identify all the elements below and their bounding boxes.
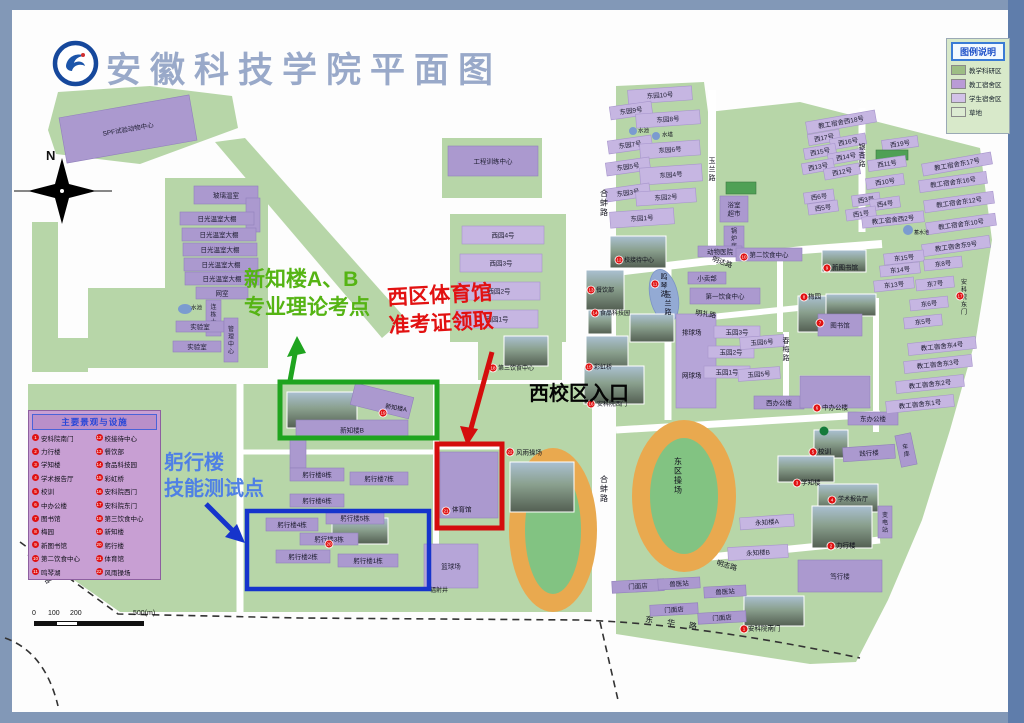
map-label: 网球场 xyxy=(682,371,702,380)
facility-label: 第三饮食中心 xyxy=(105,513,144,523)
annotation-skill-test: 躬行楼 技能测试点 xyxy=(164,450,264,503)
facility-number: 16 xyxy=(96,488,103,495)
green-poi-dot xyxy=(820,427,829,436)
facility-label: 彩虹桥 xyxy=(105,473,125,483)
facility-label: 体育馆 xyxy=(105,553,125,563)
map-label: 梅园 xyxy=(808,292,821,301)
map-label: 中办公楼 xyxy=(822,403,849,412)
building-label: 玉园3号 xyxy=(725,328,749,336)
legend-item: 教工宿舍区 xyxy=(951,79,1005,89)
facility-label: 食品科技园 xyxy=(105,459,138,469)
facility-item: 3学知楼 xyxy=(31,458,95,471)
facility-label: 安科院东门 xyxy=(105,500,138,510)
facility-item: 4学术报告厅 xyxy=(31,471,95,484)
map-label: 新图书馆 xyxy=(832,263,859,272)
facility-item: 17安科院东门 xyxy=(95,498,159,511)
building: 玉园5号 xyxy=(738,367,781,382)
poi-marker-number: 21 xyxy=(443,509,449,514)
legend-swatch xyxy=(951,65,966,75)
map-label: 风雨操场 xyxy=(516,448,543,457)
facility-label: 中办公楼 xyxy=(41,500,67,510)
facility-number: 13 xyxy=(96,448,103,455)
poi-marker: 12 xyxy=(615,256,623,264)
map-label: 银杏路 xyxy=(859,142,866,168)
facility-number: 3 xyxy=(32,461,39,468)
building: 日光温室大棚 xyxy=(183,243,257,256)
map-label: 水池 xyxy=(191,304,203,312)
building: 日光温室大棚 xyxy=(182,228,256,241)
annotation-admit-card: 西区体育馆 准考证领取 xyxy=(387,279,495,340)
building-label: 躬行楼5栋 xyxy=(340,513,370,522)
poi-marker: 9 xyxy=(823,264,831,272)
poi-marker-number: 13 xyxy=(588,288,594,293)
scale-segment xyxy=(56,621,78,626)
building: 西园3号 xyxy=(460,254,542,272)
annotation-exam-theory-line1: 新知楼A、B xyxy=(244,266,370,294)
photo-thumbnail xyxy=(826,294,876,316)
poi-marker: 17 xyxy=(956,292,964,300)
building-label: 篮球场 xyxy=(441,561,461,570)
building-label: 小卖部 xyxy=(697,273,717,282)
map-label: 体育馆 xyxy=(452,505,472,514)
poi-marker: 10 xyxy=(740,253,748,261)
building-label: 浴室 xyxy=(728,200,742,209)
facility-number: 4 xyxy=(32,474,39,481)
building-label: 日光温室大棚 xyxy=(203,274,243,283)
map-label: 玉兰路 xyxy=(709,157,716,182)
poi-marker-number: 10 xyxy=(741,255,747,260)
legend-item: 学生宿舍区 xyxy=(951,93,1005,103)
map-label: 合蚌路 xyxy=(600,474,608,503)
map-label: 水塔 xyxy=(662,131,674,139)
building-label: 玉园2号 xyxy=(719,348,743,356)
photo-thumbnail xyxy=(744,596,804,626)
annotation-skill-test-line1: 躬行楼 xyxy=(164,450,264,476)
legend-item-label: 草地 xyxy=(969,107,982,117)
poi-marker: 13 xyxy=(587,286,595,294)
building xyxy=(726,182,756,194)
building xyxy=(800,376,870,408)
map-label: 餐饮部 xyxy=(596,286,614,294)
map-label: 安科院南门 xyxy=(748,624,781,633)
building-label: 图书馆 xyxy=(830,320,850,329)
map-label: 排球场 xyxy=(682,328,702,337)
facility-number: 21 xyxy=(96,555,103,562)
page-title: 安徽科技学院平面图 xyxy=(106,42,502,93)
green-arrow-head xyxy=(287,336,306,357)
building-label: 超市 xyxy=(728,209,742,218)
building: 工程训练中心 xyxy=(448,146,538,176)
building-label: 玉园1号 xyxy=(715,368,739,376)
poi-marker: 1 xyxy=(740,625,748,633)
scale-label-500: 500(m) xyxy=(133,610,155,617)
building-label: 实验室 xyxy=(190,322,210,331)
photo-thumbnail xyxy=(510,462,574,512)
map-label: 辐射井 xyxy=(430,586,448,594)
poi-marker: 8 xyxy=(800,293,808,301)
legend-swatch xyxy=(951,93,966,103)
poi-marker: 15 xyxy=(585,363,593,371)
building-label: 玻璃温室 xyxy=(213,190,240,199)
facility-item: 9新图书馆 xyxy=(31,538,95,551)
building: 躬行楼7栋 xyxy=(350,472,408,485)
building-label: 西园3号 xyxy=(489,259,513,267)
poi-marker-number: 15 xyxy=(586,365,592,370)
scale-segment xyxy=(78,621,144,626)
scale-bar: 0 100 200 500(m) xyxy=(30,610,180,634)
poi-marker-number: 17 xyxy=(957,294,963,299)
facility-label: 图书馆 xyxy=(41,513,61,523)
building: 网室 xyxy=(196,287,248,299)
facility-number: 18 xyxy=(96,515,103,522)
annotation-admit-card-line2: 准考证领取 xyxy=(388,307,494,340)
building: 实验室 xyxy=(176,321,224,332)
building-label: 西办公楼 xyxy=(766,398,793,407)
building: 东办公楼 xyxy=(848,412,898,425)
building: 玉园3号 xyxy=(714,326,760,338)
facility-label: 餐饮部 xyxy=(105,446,125,456)
facility-item: 11鸣琴湖 xyxy=(31,565,95,578)
poi-marker: 4 xyxy=(828,496,836,504)
facility-item: 2力行楼 xyxy=(31,444,95,457)
facility-item: 1安科院南门 xyxy=(31,431,95,444)
facility-label: 躬行楼 xyxy=(105,540,125,550)
poi-marker: 11 xyxy=(651,280,659,288)
compass-rose: N xyxy=(14,148,112,224)
annotation-skill-test-line2: 技能测试点 xyxy=(164,476,264,502)
building: 躬行楼5栋 xyxy=(326,512,384,524)
poi-marker: 3 xyxy=(793,479,801,487)
building: 躬行楼2栋 xyxy=(276,550,330,563)
poi-marker: 21 xyxy=(442,507,450,515)
poi-marker-number: 11 xyxy=(653,282,658,287)
building-label: 西园4号 xyxy=(491,231,515,239)
facility-label: 鸣琴湖 xyxy=(41,567,61,577)
legend-item: 草地 xyxy=(951,107,1005,117)
map-label: 食品科技园 xyxy=(600,309,630,317)
building-label: 玉园6号 xyxy=(750,338,774,348)
poi-marker-number: 19 xyxy=(380,411,386,416)
building-label: 日光温室大棚 xyxy=(198,214,238,223)
poi-marker: 6 xyxy=(813,404,821,412)
facility-item: 14食品科技园 xyxy=(95,458,159,471)
building-label: 新知楼B xyxy=(340,425,364,434)
map-label: 合蚌路 xyxy=(600,188,608,217)
legend-item: 教学科研区 xyxy=(951,65,1005,75)
building-label: 躬行楼4栋 xyxy=(277,520,307,529)
building: 西园4号 xyxy=(462,226,544,244)
building-label: 躬行楼7栋 xyxy=(364,474,394,483)
building-label: 玉园5号 xyxy=(747,370,771,380)
facility-number: 11 xyxy=(32,568,39,575)
facility-number: 6 xyxy=(32,501,39,508)
poi-marker: 19 xyxy=(379,409,387,417)
facilities-legend-title: 主要景观与设施 xyxy=(32,414,157,430)
facilities-legend: 主要景观与设施 1安科院南门2力行楼3学知楼4学术报告厅5校训6中办公楼7图书馆… xyxy=(28,410,161,580)
map-label: 校训 xyxy=(818,447,831,456)
facility-number: 5 xyxy=(32,488,39,495)
facility-label: 校接待中心 xyxy=(105,433,138,443)
poi-marker-number: 18 xyxy=(490,366,496,371)
map-label: 第三饮食中心 xyxy=(498,364,534,372)
building: 图书馆 xyxy=(818,314,862,336)
building-label: 网室 xyxy=(216,288,230,297)
facility-number: 15 xyxy=(96,474,103,481)
facility-label: 学术报告厅 xyxy=(41,473,74,483)
facility-item: 5校训 xyxy=(31,485,95,498)
legend-item-label: 教学科研区 xyxy=(969,65,1002,75)
map-label: 蓄水池 xyxy=(914,229,929,236)
scale-label-100: 100 xyxy=(48,610,60,617)
facility-label: 力行楼 xyxy=(41,446,61,456)
poi-marker-number: 22 xyxy=(507,450,513,455)
facility-item: 8梅园 xyxy=(31,525,95,538)
map-label: 变电站 xyxy=(882,511,888,534)
facility-label: 新知楼 xyxy=(105,526,125,536)
facility-item: 18第三饮食中心 xyxy=(95,511,159,524)
building: 西办公楼 xyxy=(754,396,804,409)
building: 实验室 xyxy=(173,341,221,352)
facility-number: 1 xyxy=(32,434,39,441)
annotation-west-entrance: 西校区入口 xyxy=(529,381,629,407)
legend-title: 图例说明 xyxy=(951,42,1005,61)
facility-item: 22风雨操场 xyxy=(95,565,159,578)
building: 躬行楼6栋 xyxy=(290,494,344,507)
map-label: 学知楼 xyxy=(801,478,821,487)
photo-thumbnail xyxy=(778,456,834,482)
facility-number: 9 xyxy=(32,541,39,548)
building: 躬行楼1栋 xyxy=(338,554,398,567)
building: 管理中心 xyxy=(224,318,238,362)
building-label: 日光温室大棚 xyxy=(201,245,241,254)
building: 门面店 xyxy=(612,579,665,594)
building: 动物医院 xyxy=(698,246,742,257)
scale-label-0: 0 xyxy=(32,610,36,617)
map-label: 鸣琴湖 xyxy=(661,272,668,298)
building-label: 躬行楼1栋 xyxy=(353,556,383,565)
scale-label-200: 200 xyxy=(70,610,82,617)
facility-number: 10 xyxy=(32,555,39,562)
facility-item: 7图书馆 xyxy=(31,511,95,524)
building xyxy=(676,314,716,408)
building-label: 日光温室大棚 xyxy=(202,260,242,269)
building xyxy=(290,438,306,468)
poi-marker-number: 20 xyxy=(326,542,332,547)
legend-item-label: 教工宿舍区 xyxy=(969,79,1002,89)
building: 躬行楼8栋 xyxy=(290,468,344,481)
photo-thumbnail xyxy=(630,314,674,342)
facility-item: 15彩虹桥 xyxy=(95,471,159,484)
building-label: 躬行楼2栋 xyxy=(288,552,318,561)
poi-marker: 22 xyxy=(506,448,514,456)
poi-marker: 5 xyxy=(809,448,817,456)
poi-marker: 14 xyxy=(591,309,599,317)
facility-item: 13餐饮部 xyxy=(95,444,159,457)
building: 浴室超市 xyxy=(720,196,748,222)
building: 第一饮食中心 xyxy=(690,288,760,304)
facility-number: 14 xyxy=(96,461,103,468)
building-label: 实验室 xyxy=(187,342,207,351)
facility-item: 16安科院西门 xyxy=(95,485,159,498)
building-label: 躬行楼6栋 xyxy=(302,496,332,505)
legend-swatch xyxy=(951,107,966,117)
building: 兽医站 xyxy=(658,577,701,590)
facility-label: 新图书馆 xyxy=(41,540,67,550)
map-label: 学术报告厅 xyxy=(838,495,868,503)
facility-label: 安科院南门 xyxy=(41,433,74,443)
map-label: 彩虹桥 xyxy=(594,363,612,371)
facility-number: 8 xyxy=(32,528,39,535)
university-logo xyxy=(52,40,99,87)
building: 门面店 xyxy=(698,611,747,624)
building-label: 动物医院 xyxy=(707,247,734,256)
building-label: 东办公楼 xyxy=(860,414,887,423)
map-label: 东区操场 xyxy=(674,456,682,495)
facility-number: 7 xyxy=(32,515,39,522)
annotation-exam-theory-line2: 专业理论考点 xyxy=(244,294,370,322)
campus-map-screenshot: SPF试验动物中心玻璃温室日光温室大棚日光温室大棚日光温室大棚日光温室大棚日光温… xyxy=(0,0,1024,723)
legend-swatch xyxy=(951,79,966,89)
facility-item: 6中办公楼 xyxy=(31,498,95,511)
poi-marker-number: 12 xyxy=(616,258,622,263)
building-label: 第二饮食中心 xyxy=(750,250,790,259)
facility-number: 17 xyxy=(96,501,103,508)
photo-thumbnail xyxy=(504,336,548,366)
building-label: 躬行楼8栋 xyxy=(302,470,332,479)
poi-marker: 2 xyxy=(827,542,835,550)
facility-label: 梅园 xyxy=(41,526,54,536)
green-arrow-line xyxy=(290,354,295,381)
facility-number: 2 xyxy=(32,448,39,455)
map-label: 管理中心 xyxy=(228,325,234,356)
map-label: 力行楼 xyxy=(836,541,856,550)
building: 日光温室大棚 xyxy=(180,212,254,225)
poi-marker: 20 xyxy=(325,540,333,548)
poi-marker-number: 14 xyxy=(592,311,598,316)
building: 兽医站 xyxy=(704,585,747,598)
building: 门面店 xyxy=(650,603,699,616)
building-label: 工程训练中心 xyxy=(474,156,514,165)
building-label: 笃行楼 xyxy=(830,571,850,580)
facility-label: 第二饮食中心 xyxy=(41,553,80,563)
facility-number: 19 xyxy=(96,528,103,535)
facility-item: 10第二饮食中心 xyxy=(31,552,95,565)
map-label: 水池 xyxy=(638,127,650,135)
building-label: 日光温室大棚 xyxy=(200,230,240,239)
building: 躬行楼4栋 xyxy=(266,518,318,531)
building: 笃行楼 xyxy=(798,560,882,592)
facility-number: 12 xyxy=(96,434,103,441)
building-label: 第一饮食中心 xyxy=(706,291,746,300)
building: 小卖部 xyxy=(688,272,726,284)
scale-segment xyxy=(34,621,56,626)
annotation-exam-theory: 新知楼A、B 专业理论考点 xyxy=(244,266,370,321)
facility-number: 22 xyxy=(96,568,103,575)
building: 变电站 xyxy=(878,506,892,538)
facility-item: 21体育馆 xyxy=(95,552,159,565)
building: 篮球场 xyxy=(424,544,478,588)
map-label: 春梅路 xyxy=(783,336,790,362)
map-label: 校接待中心 xyxy=(624,256,654,264)
facility-number: 20 xyxy=(96,541,103,548)
facility-item: 19新知楼 xyxy=(95,525,159,538)
facility-label: 风雨操场 xyxy=(105,567,131,577)
facility-item: 20躬行楼 xyxy=(95,538,159,551)
legend-item-label: 学生宿舍区 xyxy=(969,93,1002,103)
facility-label: 安科院西门 xyxy=(105,486,138,496)
compass-north-label: N xyxy=(46,148,55,163)
building: 永知楼B xyxy=(728,544,789,560)
facility-label: 学知楼 xyxy=(41,459,61,469)
facility-item: 12校接待中心 xyxy=(95,431,159,444)
map-legend: 图例说明 教学科研区教工宿舍区学生宿舍区草地 xyxy=(946,38,1010,134)
facility-label: 校训 xyxy=(41,486,54,496)
poi-marker: 7 xyxy=(816,319,824,327)
